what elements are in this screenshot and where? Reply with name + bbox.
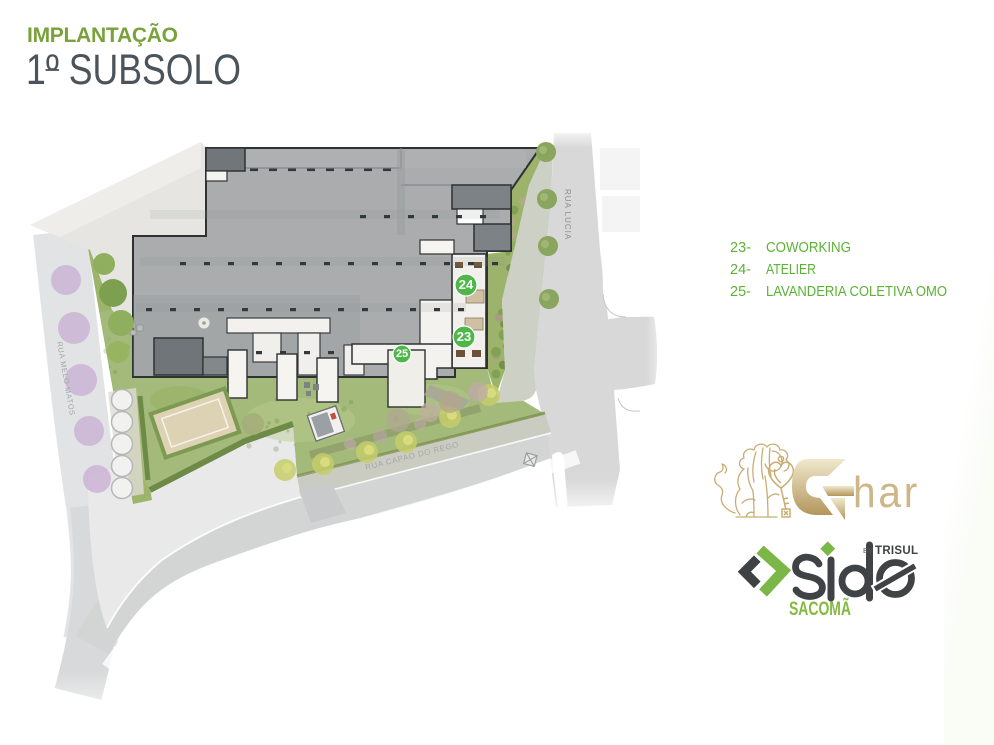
svg-text:SACOMÃ: SACOMÃ <box>789 598 851 620</box>
svg-text:BY: BY <box>863 546 873 555</box>
svg-text:har: har <box>853 468 920 517</box>
svg-text:TRISUL: TRISUL <box>875 545 918 557</box>
